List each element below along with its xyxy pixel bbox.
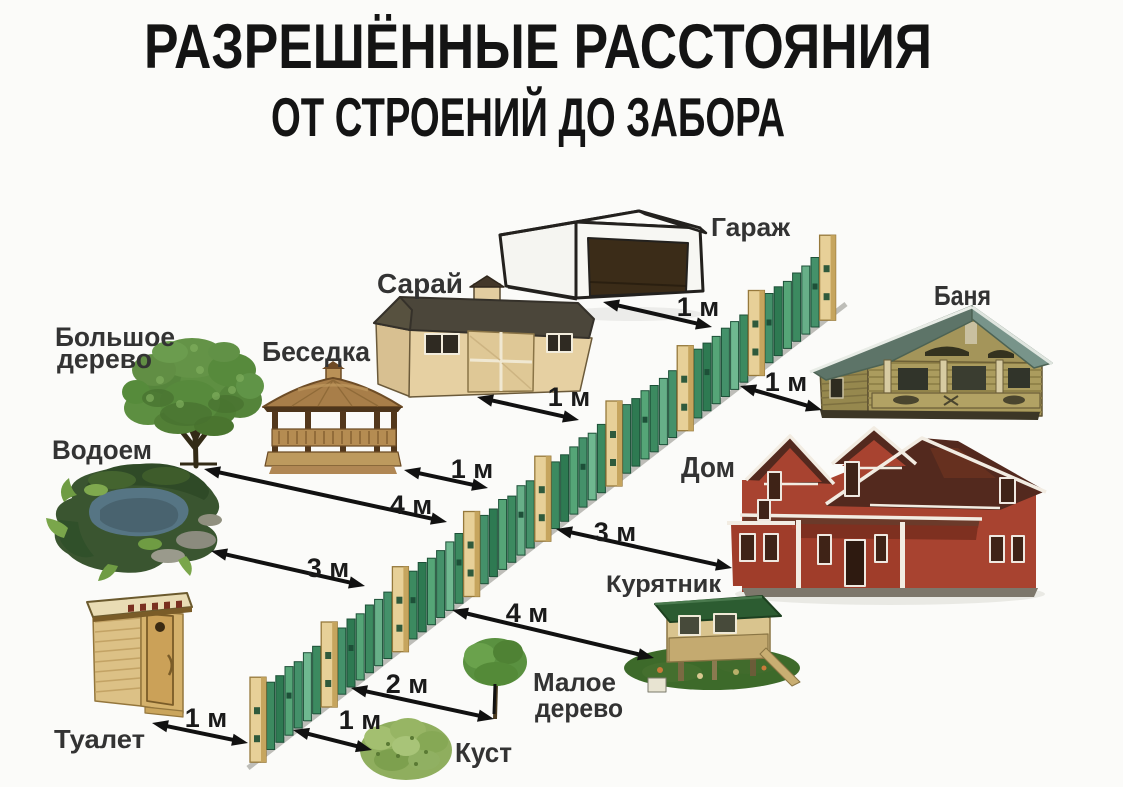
- svg-text:4 м: 4 м: [390, 490, 433, 520]
- svg-text:3 м: 3 м: [307, 553, 350, 583]
- svg-text:1 м: 1 м: [765, 367, 808, 397]
- svg-text:ОТ СТРОЕНИЙ ДО ЗАБОРА: ОТ СТРОЕНИЙ ДО ЗАБОРА: [271, 85, 785, 148]
- svg-text:Куст: Куст: [455, 737, 512, 768]
- svg-text:4 м: 4 м: [506, 598, 549, 628]
- svg-text:Беседка: Беседка: [262, 336, 370, 367]
- svg-text:Гараж: Гараж: [711, 212, 791, 242]
- svg-text:Курятник: Курятник: [606, 571, 722, 598]
- svg-text:1 м: 1 м: [451, 454, 494, 484]
- svg-text:Водоем: Водоем: [52, 435, 152, 465]
- svg-text:1 м: 1 м: [677, 292, 720, 322]
- svg-text:3 м: 3 м: [594, 517, 637, 547]
- svg-text:Сарай: Сарай: [377, 268, 463, 299]
- svg-text:2 м: 2 м: [386, 669, 429, 699]
- svg-text:дерево: дерево: [535, 693, 623, 723]
- svg-text:дерево: дерево: [57, 344, 152, 374]
- svg-text:Баня: Баня: [934, 280, 991, 311]
- svg-text:РАЗРЕШЁННЫЕ РАССТОЯНИЯ: РАЗРЕШЁННЫЕ РАССТОЯНИЯ: [144, 12, 932, 82]
- svg-text:1 м: 1 м: [548, 382, 591, 412]
- svg-text:1 м: 1 м: [185, 703, 228, 733]
- svg-text:Туалет: Туалет: [54, 724, 145, 754]
- svg-text:Дом: Дом: [681, 452, 735, 484]
- svg-text:1 м: 1 м: [339, 705, 382, 735]
